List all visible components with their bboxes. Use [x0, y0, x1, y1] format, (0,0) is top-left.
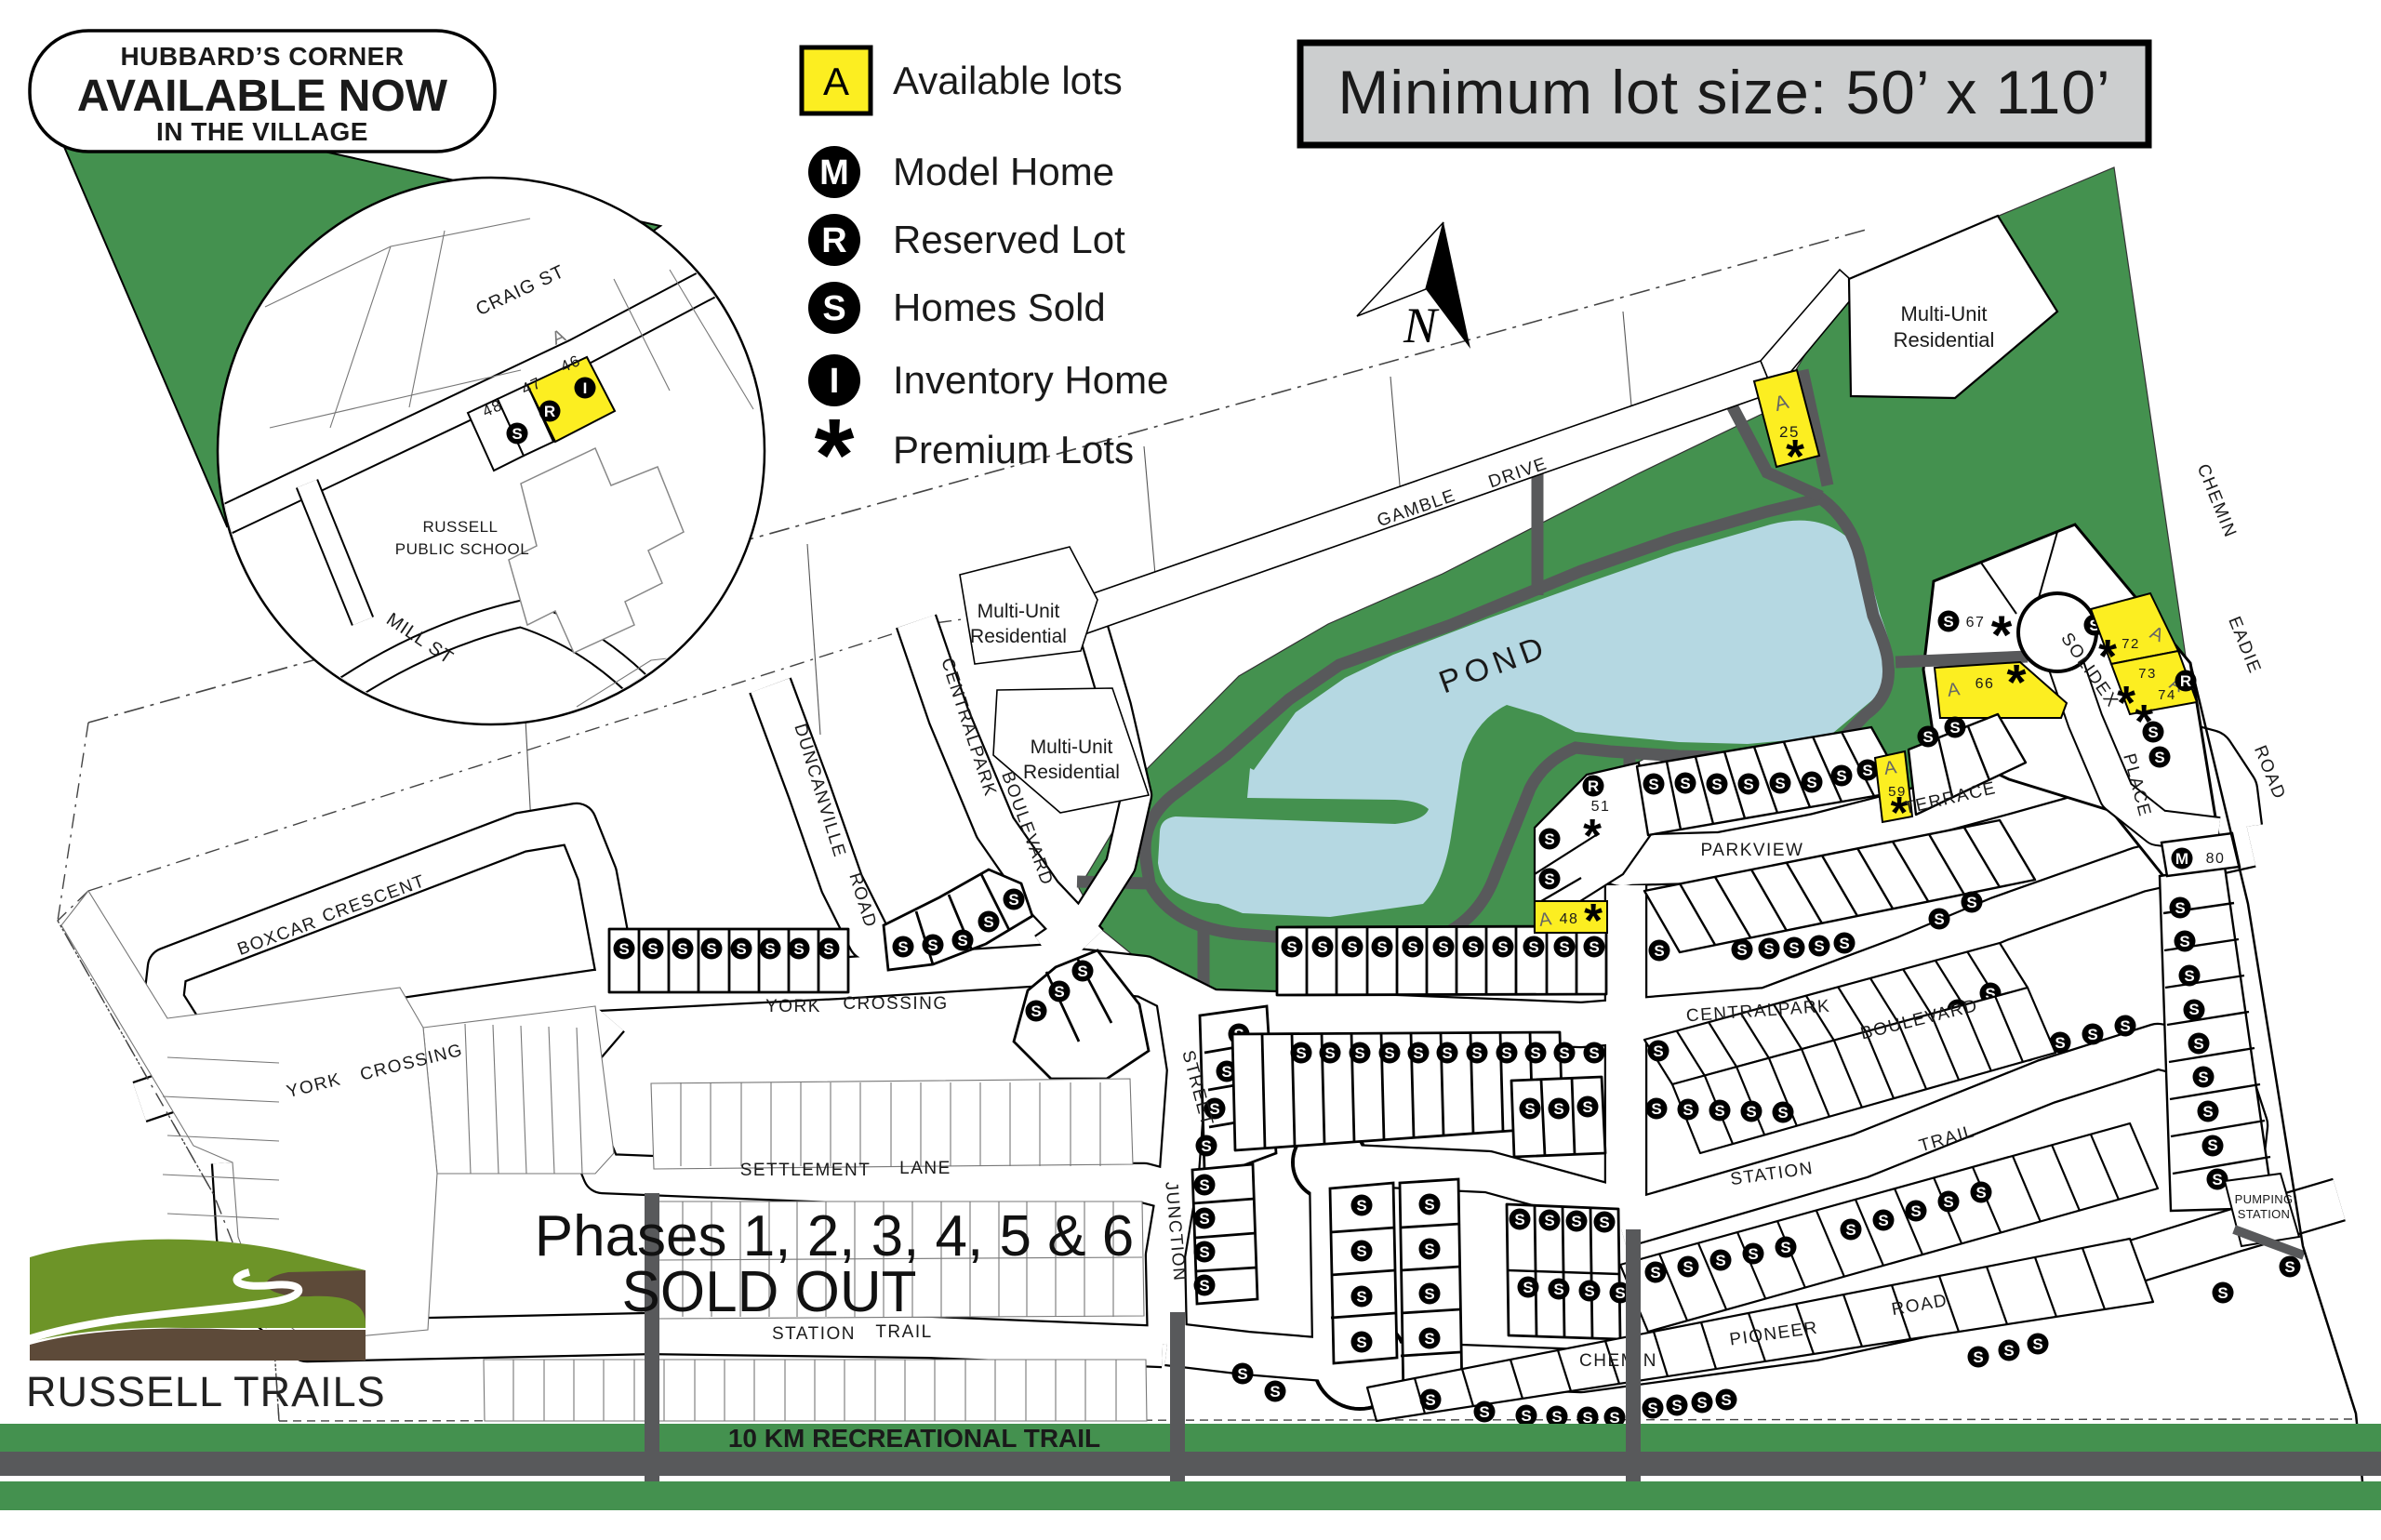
svg-text:S: S: [1442, 1044, 1452, 1062]
svg-text:Reserved Lot: Reserved Lot: [893, 218, 1125, 261]
svg-text:S: S: [1424, 1330, 1434, 1347]
svg-text:AVAILABLE NOW: AVAILABLE NOW: [77, 72, 448, 121]
svg-text:Multi-Unit: Multi-Unit: [1901, 302, 1988, 325]
svg-text:S: S: [512, 425, 522, 443]
svg-text:S: S: [1201, 1137, 1211, 1155]
svg-text:S: S: [1199, 1277, 1209, 1294]
svg-text:IN THE VILLAGE: IN THE VILLAGE: [156, 117, 368, 146]
svg-text:S: S: [822, 289, 845, 328]
svg-text:S: S: [1651, 1100, 1661, 1118]
svg-text:N: N: [1403, 298, 1440, 353]
svg-text:A: A: [1537, 909, 1554, 931]
svg-text:*: *: [1583, 809, 1602, 862]
svg-text:Model Home: Model Home: [893, 150, 1114, 193]
svg-text:A: A: [823, 60, 849, 103]
svg-text:I: I: [830, 362, 840, 401]
svg-text:S: S: [765, 940, 775, 958]
svg-text:SETTLEMENT: SETTLEMENT: [740, 1161, 871, 1180]
svg-text:TRAIL: TRAIL: [875, 1322, 932, 1342]
svg-text:S: S: [1721, 1391, 1731, 1409]
svg-text:S: S: [2217, 1284, 2228, 1302]
svg-text:S: S: [823, 940, 833, 958]
svg-text:S: S: [2179, 933, 2189, 950]
svg-text:S: S: [2003, 1342, 2014, 1360]
svg-text:PUMPING: PUMPING: [2235, 1192, 2294, 1206]
svg-text:S: S: [1424, 1196, 1434, 1214]
svg-text:S: S: [1524, 1100, 1535, 1118]
svg-text:S: S: [1424, 1285, 1434, 1303]
svg-text:I: I: [583, 379, 588, 397]
svg-text:M: M: [2175, 850, 2188, 868]
svg-text:S: S: [1845, 1221, 1856, 1239]
svg-text:74: 74: [2158, 687, 2176, 703]
svg-text:S: S: [1356, 1242, 1366, 1260]
svg-text:S: S: [1407, 938, 1417, 956]
svg-text:*: *: [1786, 430, 1804, 483]
svg-text:S: S: [2032, 1335, 2042, 1353]
svg-text:Multi-Unit: Multi-Unit: [1031, 737, 1113, 758]
svg-text:S: S: [2198, 1069, 2208, 1086]
svg-text:S: S: [1377, 938, 1387, 956]
svg-text:S: S: [1237, 1365, 1247, 1383]
svg-text:S: S: [1582, 1098, 1592, 1116]
svg-text:S: S: [1836, 767, 1846, 785]
svg-text:S: S: [1648, 776, 1658, 793]
svg-text:S: S: [1973, 1348, 1983, 1366]
svg-text:S: S: [1528, 938, 1538, 956]
svg-text:S: S: [1544, 1212, 1554, 1229]
svg-text:S: S: [1425, 1391, 1435, 1409]
svg-text:PARKVIEW: PARKVIEW: [1701, 841, 1804, 860]
svg-text:Phases 1, 2, 3, 4, 5 & 6: Phases 1, 2, 3, 4, 5 & 6: [535, 1204, 1135, 1268]
svg-text:S: S: [1589, 1044, 1599, 1062]
svg-text:S: S: [1934, 910, 1944, 928]
svg-text:S: S: [1715, 1252, 1725, 1269]
svg-text:S: S: [1711, 776, 1722, 793]
svg-text:S: S: [706, 940, 716, 958]
svg-text:S: S: [1324, 1044, 1335, 1062]
svg-text:S: S: [1584, 1282, 1594, 1300]
svg-text:S: S: [1680, 775, 1690, 792]
svg-text:67: 67: [1966, 615, 1986, 631]
svg-text:S: S: [1413, 1044, 1423, 1062]
svg-text:S: S: [2193, 1035, 2203, 1053]
svg-text:S: S: [1544, 830, 1554, 848]
svg-text:M: M: [819, 153, 849, 192]
svg-text:Homes Sold: Homes Sold: [893, 285, 1106, 329]
svg-text:S: S: [1553, 1100, 1563, 1118]
svg-text:HUBBARD’S CORNER: HUBBARD’S CORNER: [120, 42, 404, 71]
svg-text:S: S: [2175, 899, 2185, 917]
svg-text:Residential: Residential: [970, 626, 1067, 647]
svg-text:*: *: [2006, 655, 2026, 710]
svg-text:S: S: [1789, 939, 1799, 957]
svg-text:S: S: [1949, 719, 1960, 737]
svg-text:S: S: [1384, 1044, 1394, 1062]
svg-text:SOLD OUT: SOLD OUT: [622, 1260, 917, 1324]
svg-text:S: S: [2087, 1026, 2097, 1043]
svg-text:S: S: [2207, 1136, 2217, 1154]
svg-text:S: S: [1438, 938, 1448, 956]
svg-text:Residential: Residential: [1894, 328, 1995, 352]
svg-text:S: S: [1714, 1102, 1724, 1120]
svg-text:R: R: [1588, 777, 1599, 795]
svg-text:S: S: [1763, 940, 1774, 958]
svg-text:S: S: [1468, 938, 1478, 956]
svg-text:10 KM RECREATIONAL TRAIL: 10 KM RECREATIONAL TRAIL: [728, 1424, 1100, 1453]
svg-text:S: S: [1530, 1044, 1540, 1062]
svg-text:S: S: [2184, 967, 2194, 985]
svg-text:S: S: [2212, 1171, 2222, 1188]
svg-text:S: S: [1650, 1264, 1660, 1281]
svg-text:73: 73: [2138, 666, 2157, 682]
svg-text:R: R: [821, 221, 846, 260]
svg-text:S: S: [1356, 1197, 1366, 1215]
svg-text:LANE: LANE: [899, 1159, 951, 1178]
svg-text:S: S: [1683, 1258, 1693, 1276]
svg-text:S: S: [1077, 962, 1087, 980]
svg-text:YORK: YORK: [765, 997, 821, 1016]
svg-text:S: S: [647, 940, 658, 958]
svg-text:S: S: [1814, 937, 1824, 955]
svg-text:S: S: [2154, 749, 2164, 766]
svg-text:S: S: [1199, 1176, 1209, 1194]
svg-text:S: S: [1347, 938, 1357, 956]
svg-text:Premium Lots: Premium Lots: [893, 428, 1134, 471]
svg-text:S: S: [1975, 1184, 1986, 1201]
svg-text:S: S: [1647, 1400, 1657, 1417]
svg-text:S: S: [2055, 1034, 2065, 1052]
svg-text:S: S: [1356, 1288, 1366, 1306]
svg-text:S: S: [1922, 728, 1933, 746]
svg-text:S: S: [1943, 613, 1953, 631]
svg-text:S: S: [1544, 870, 1554, 888]
svg-text:S: S: [2120, 1017, 2130, 1035]
svg-text:A: A: [1946, 679, 1962, 701]
svg-text:48: 48: [1560, 911, 1579, 927]
svg-text:*: *: [815, 398, 855, 512]
svg-text:STATION: STATION: [772, 1324, 856, 1344]
svg-text:RUSSELL TRAILS: RUSSELL TRAILS: [26, 1368, 386, 1415]
svg-text:80: 80: [2206, 851, 2226, 867]
svg-text:S: S: [1806, 774, 1816, 791]
svg-text:S: S: [1296, 1044, 1306, 1062]
svg-text:66: 66: [1975, 676, 1995, 692]
svg-text:S: S: [927, 936, 938, 954]
svg-text:S: S: [1671, 1397, 1682, 1414]
svg-text:S: S: [1878, 1212, 1888, 1229]
svg-text:S: S: [957, 932, 967, 949]
svg-text:S: S: [1653, 1042, 1663, 1060]
svg-text:S: S: [1286, 938, 1297, 956]
svg-text:S: S: [1514, 1211, 1524, 1228]
svg-text:S: S: [1683, 1101, 1693, 1119]
svg-text:S: S: [1199, 1243, 1209, 1261]
svg-text:S: S: [1862, 762, 1872, 779]
svg-text:*: *: [1584, 894, 1603, 947]
svg-text:S: S: [2202, 1103, 2213, 1121]
svg-text:S: S: [1736, 941, 1747, 959]
svg-text:A: A: [1882, 757, 1899, 779]
svg-text:S: S: [1471, 1044, 1482, 1062]
svg-text:S: S: [1559, 1044, 1569, 1062]
svg-text:S: S: [1354, 1044, 1364, 1062]
svg-text:R: R: [2180, 672, 2191, 690]
svg-text:S: S: [1521, 1407, 1531, 1425]
svg-text:S: S: [1615, 1284, 1625, 1302]
svg-text:S: S: [1746, 1103, 1756, 1121]
svg-text:Multi-Unit: Multi-Unit: [978, 601, 1060, 622]
svg-text:S: S: [1839, 935, 1849, 952]
svg-text:S: S: [898, 938, 908, 956]
svg-text:S: S: [1199, 1210, 1209, 1228]
svg-text:S: S: [619, 940, 629, 958]
svg-text:S: S: [1559, 938, 1569, 956]
svg-text:S: S: [1654, 942, 1664, 960]
svg-text:R: R: [544, 403, 555, 420]
svg-text:S: S: [1777, 1104, 1788, 1122]
svg-text:S: S: [1479, 1403, 1489, 1421]
svg-text:RUSSELL: RUSSELL: [423, 518, 499, 536]
svg-text:72: 72: [2122, 636, 2140, 652]
svg-text:*: *: [2117, 676, 2135, 729]
svg-text:S: S: [1497, 938, 1508, 956]
svg-text:S: S: [1599, 1214, 1609, 1231]
svg-text:S: S: [1317, 938, 1327, 956]
svg-text:S: S: [2188, 1001, 2199, 1018]
svg-text:Inventory Home: Inventory Home: [893, 358, 1168, 402]
svg-text:Available lots: Available lots: [893, 59, 1123, 102]
svg-text:S: S: [793, 940, 804, 958]
svg-text:S: S: [1270, 1383, 1280, 1401]
svg-text:S: S: [1780, 1239, 1790, 1256]
svg-text:S: S: [1008, 891, 1018, 909]
svg-text:S: S: [2148, 724, 2158, 741]
svg-text:S: S: [677, 940, 687, 958]
svg-text:CHEMIN: CHEMIN: [1579, 1351, 1657, 1371]
svg-text:S: S: [1054, 983, 1064, 1001]
svg-text:Residential: Residential: [1023, 762, 1120, 783]
svg-text:S: S: [1553, 1281, 1563, 1298]
svg-text:S: S: [1356, 1334, 1366, 1351]
svg-text:S: S: [1775, 775, 1785, 792]
svg-text:STATION: STATION: [2238, 1207, 2291, 1221]
svg-text:S: S: [1424, 1241, 1434, 1258]
svg-text:S: S: [1696, 1394, 1707, 1412]
svg-text:S: S: [983, 913, 993, 931]
svg-text:S: S: [736, 940, 746, 958]
svg-text:S: S: [2284, 1258, 2295, 1276]
svg-text:S: S: [1943, 1193, 1953, 1211]
svg-text:S: S: [1748, 1245, 1758, 1263]
svg-text:S: S: [1571, 1213, 1581, 1230]
svg-text:S: S: [1966, 894, 1976, 911]
svg-text:S: S: [1031, 1002, 1041, 1020]
svg-text:S: S: [1501, 1044, 1511, 1062]
svg-text:S: S: [1743, 776, 1753, 793]
svg-text:PUBLIC SCHOOL: PUBLIC SCHOOL: [395, 540, 529, 558]
svg-text:S: S: [1910, 1202, 1921, 1220]
svg-text:S: S: [1221, 1063, 1231, 1081]
svg-text:S: S: [1551, 1408, 1562, 1426]
svg-text:CROSSING: CROSSING: [843, 994, 948, 1014]
svg-text:Minimum lot size: 50’ x 110’: Minimum lot size: 50’ x 110’: [1337, 58, 2110, 126]
svg-text:S: S: [1523, 1279, 1533, 1296]
